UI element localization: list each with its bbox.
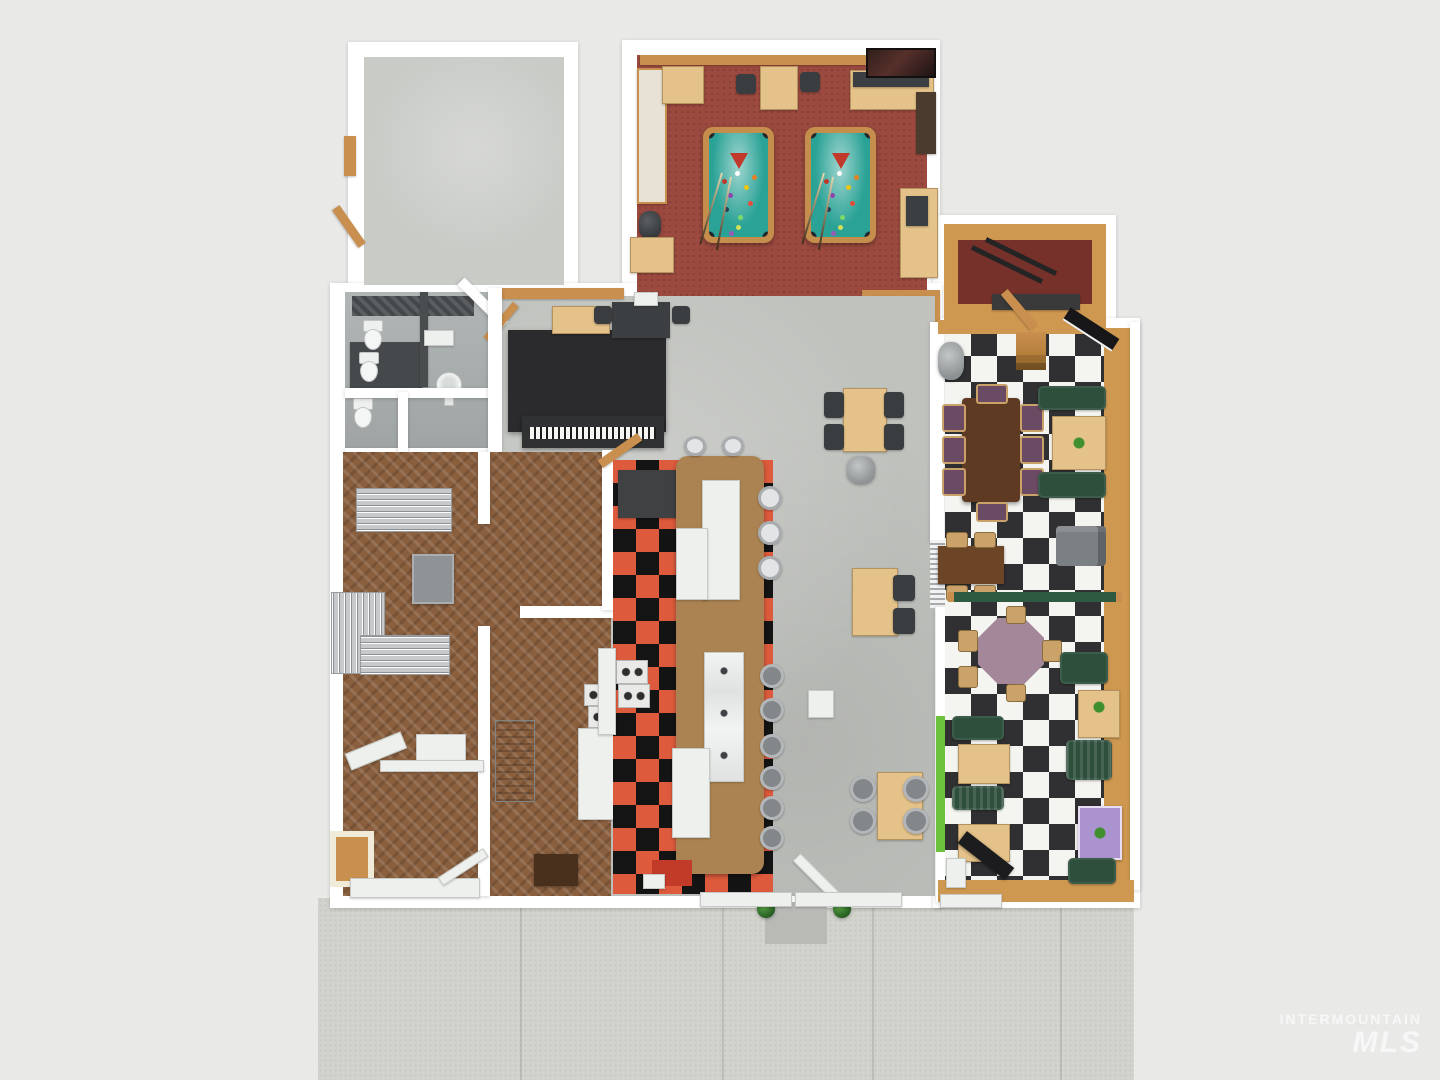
billiard-balls: [735, 171, 740, 176]
restroom-mat: [352, 296, 474, 316]
window-sill: [940, 894, 1002, 908]
watermark-line2: MLS: [1280, 1027, 1422, 1059]
low-divider: [948, 592, 1122, 602]
dining-chair: [884, 392, 904, 418]
billiard-rack: [832, 153, 850, 169]
sidewalk: [318, 898, 1134, 1080]
round-chair: [850, 776, 876, 802]
gray-cabinet: [412, 554, 454, 604]
game-table: [760, 66, 798, 110]
upholstered-chair: [942, 404, 966, 432]
counter-stool: [760, 796, 784, 820]
wire-rack: [356, 488, 452, 532]
octagon-table: [978, 618, 1044, 684]
corridor-parquet-floor: [522, 458, 614, 610]
trash-can: [938, 342, 964, 380]
wire-rack: [360, 635, 450, 675]
toilet: [362, 320, 384, 350]
counter-items: [906, 196, 928, 226]
prep-station: [672, 748, 710, 838]
wall-shelf: [380, 760, 484, 772]
restroom-wall: [345, 388, 491, 398]
watermark-line1: INTERMOUNTAIN: [1280, 1012, 1422, 1027]
wood-chair: [1006, 606, 1026, 624]
wall-picture: [866, 48, 936, 78]
booth-bench: [1038, 472, 1106, 498]
wood-chair: [1042, 640, 1062, 662]
kitchen-mat: [618, 470, 676, 518]
service-stand: [808, 690, 834, 718]
top-wall-trim: [498, 288, 624, 299]
booth-table: [1078, 690, 1120, 738]
small-sign: [643, 874, 665, 889]
game-stool: [800, 72, 820, 92]
dining-table: [852, 568, 898, 636]
wall-shelf: [916, 92, 936, 154]
booth-bench: [952, 786, 1004, 810]
dining-chair: [824, 424, 844, 450]
upholstered-chair: [942, 436, 966, 464]
booth-bench: [1068, 858, 1116, 884]
booth-table: [1052, 416, 1106, 470]
window-sill: [700, 892, 792, 907]
round-chair: [903, 776, 929, 802]
sidewalk-seam: [722, 898, 724, 1080]
wood-chair: [946, 532, 968, 548]
booth-bench: [952, 716, 1004, 740]
mls-watermark: INTERMOUNTAIN MLS: [1280, 1012, 1422, 1058]
counter-stool: [760, 698, 784, 722]
purple-booth-table: [1078, 806, 1122, 860]
booth-bench: [1038, 386, 1106, 410]
pool-table-1: [703, 127, 774, 243]
upholstered-chair: [976, 384, 1008, 404]
counter-stool: [760, 826, 784, 850]
large-dining-table: [962, 398, 1020, 502]
storage-room-top-left-floor: [364, 57, 564, 285]
counter-stool: [758, 556, 782, 580]
game-stool: [736, 74, 756, 94]
wall-sink: [424, 330, 454, 346]
counter-stool: [760, 766, 784, 790]
diner-right-wall-wood: [1104, 328, 1132, 884]
side-counter: [598, 648, 616, 735]
sidewalk-seam: [872, 898, 874, 1080]
counter-stool: [758, 521, 782, 545]
trash-can: [639, 211, 661, 239]
booth-bench: [1060, 652, 1108, 684]
counter-stool: [760, 664, 784, 688]
window-sill: [795, 892, 902, 907]
cabinet: [630, 237, 674, 273]
wood-chair: [974, 532, 996, 548]
counter-stool: [684, 436, 706, 456]
diner-right-wall: [1130, 322, 1140, 890]
stage-side-table: [612, 302, 670, 338]
stage-stool: [672, 306, 690, 324]
upholstered-chair: [942, 468, 966, 496]
triple-sink: [704, 652, 744, 782]
bottom-ledge: [350, 878, 480, 898]
floor-plan-canvas: INTERMOUNTAIN MLS: [0, 0, 1440, 1080]
wall-frame: [344, 136, 356, 176]
dining-chair: [893, 608, 915, 634]
toilet: [358, 352, 380, 382]
round-chair: [850, 808, 876, 834]
counter-stool: [758, 486, 782, 510]
dining-table: [843, 388, 887, 452]
upholstered-chair: [976, 502, 1008, 522]
wood-chair: [1006, 684, 1026, 702]
storage-wall: [478, 452, 490, 524]
range-cooktop: [618, 684, 650, 708]
billiard-rack: [730, 153, 748, 169]
couch: [1056, 526, 1106, 566]
stainless-machine: [495, 720, 535, 802]
counter-stool: [722, 436, 744, 456]
booth-table: [958, 744, 1010, 784]
prep-station: [676, 528, 708, 600]
green-accent-strip: [936, 716, 945, 852]
round-chair: [903, 808, 929, 834]
wood-chair: [958, 666, 978, 688]
toilet: [352, 398, 374, 428]
upholstered-chair: [1020, 436, 1044, 464]
wood-chair: [958, 630, 978, 652]
dining-chair: [824, 392, 844, 418]
counter-stool: [760, 734, 784, 758]
dining-chair: [884, 424, 904, 450]
dining-chair: [893, 575, 915, 601]
counter: [578, 728, 616, 820]
booth-bench: [1066, 740, 1112, 780]
service-stand: [946, 858, 966, 888]
sidewalk-seam: [1060, 898, 1062, 1080]
side-table: [662, 66, 704, 104]
pool-table-2: [805, 127, 876, 243]
billiard-balls: [837, 171, 842, 176]
stage-stool: [594, 306, 612, 324]
dark-box-table: [534, 854, 578, 886]
step-shelf: [1016, 332, 1046, 370]
sidewalk-seam: [520, 898, 522, 1080]
small-sign: [634, 292, 658, 306]
round-trash-can: [847, 456, 875, 484]
diner-table-brown: [938, 546, 1004, 584]
range-cooktop: [616, 660, 648, 684]
